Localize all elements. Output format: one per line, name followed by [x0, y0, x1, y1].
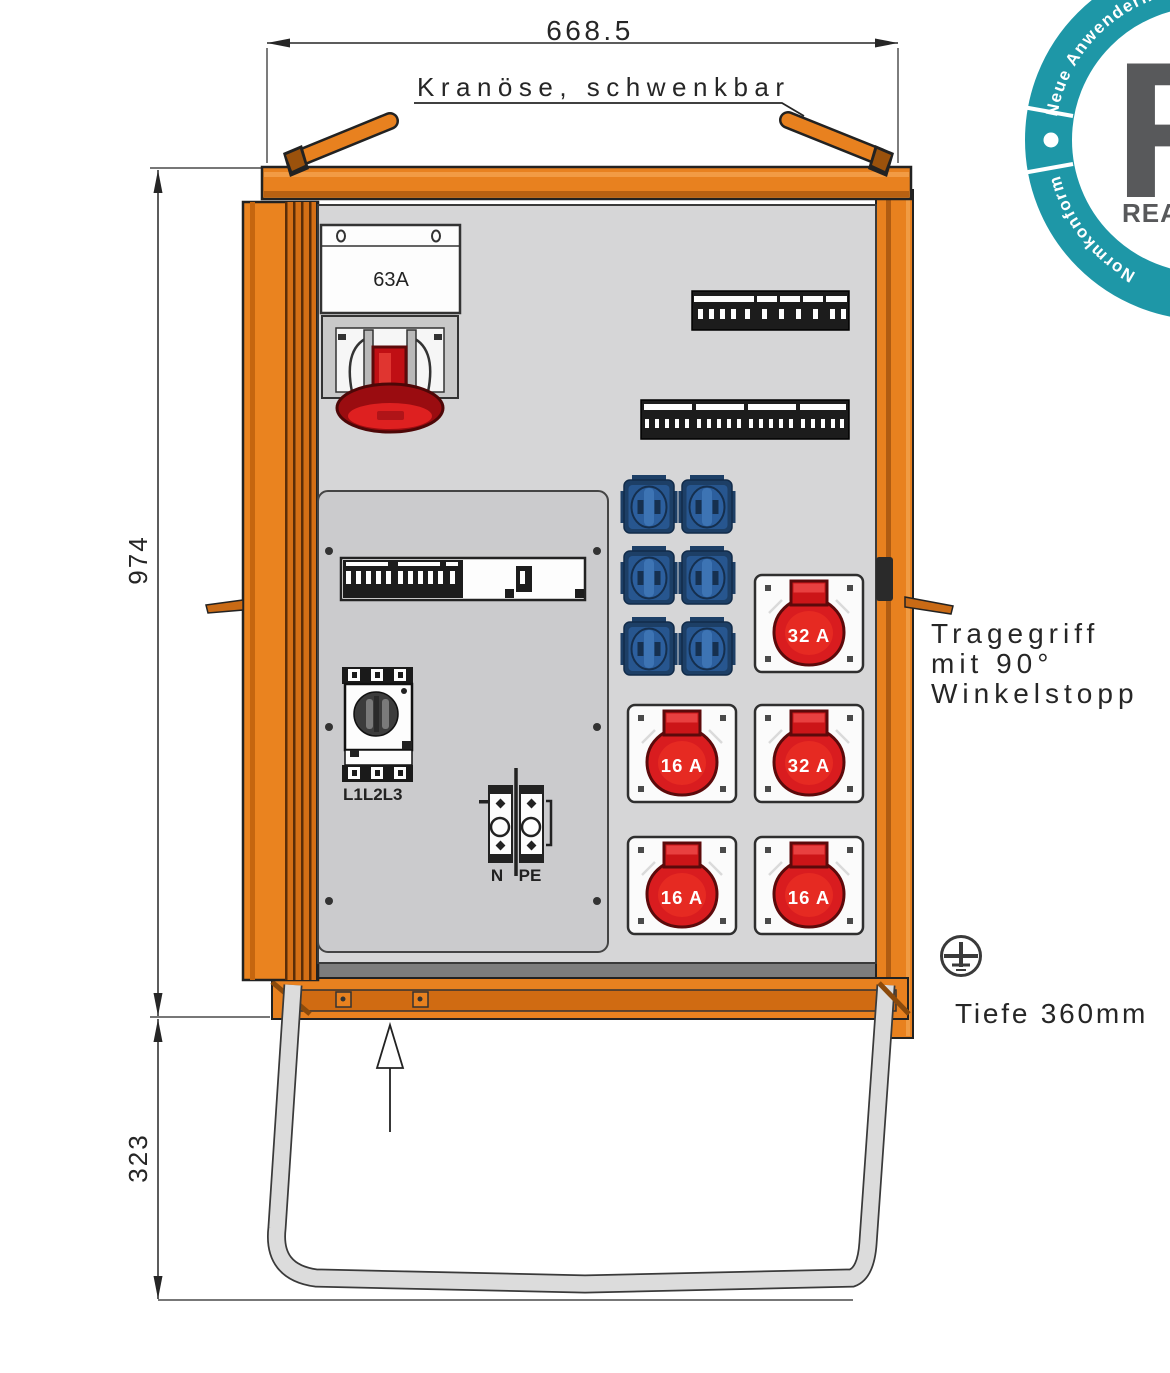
- svg-text:974: 974: [123, 535, 153, 584]
- svg-text:mit 90°: mit 90°: [931, 648, 1053, 679]
- svg-text:16 A: 16 A: [661, 755, 703, 776]
- svg-text:32 A: 32 A: [788, 625, 830, 646]
- svg-text:16 A: 16 A: [661, 887, 703, 908]
- svg-text:63A: 63A: [373, 269, 409, 291]
- svg-text:32 A: 32 A: [788, 755, 830, 776]
- svg-text:323: 323: [123, 1133, 153, 1182]
- svg-text:Tiefe 360mm: Tiefe 360mm: [955, 998, 1148, 1029]
- svg-text:668.5: 668.5: [546, 15, 634, 46]
- svg-text:Kranöse, schwenkbar: Kranöse, schwenkbar: [417, 72, 791, 102]
- svg-text:L1L2L3: L1L2L3: [343, 785, 403, 804]
- svg-text:Winkelstopp: Winkelstopp: [931, 678, 1139, 709]
- svg-text:PE: PE: [519, 866, 542, 885]
- svg-text:16 A: 16 A: [788, 887, 830, 908]
- svg-text:N: N: [491, 866, 503, 885]
- svg-text:REA: REA: [1122, 198, 1170, 228]
- svg-text:Tragegriff: Tragegriff: [931, 618, 1099, 649]
